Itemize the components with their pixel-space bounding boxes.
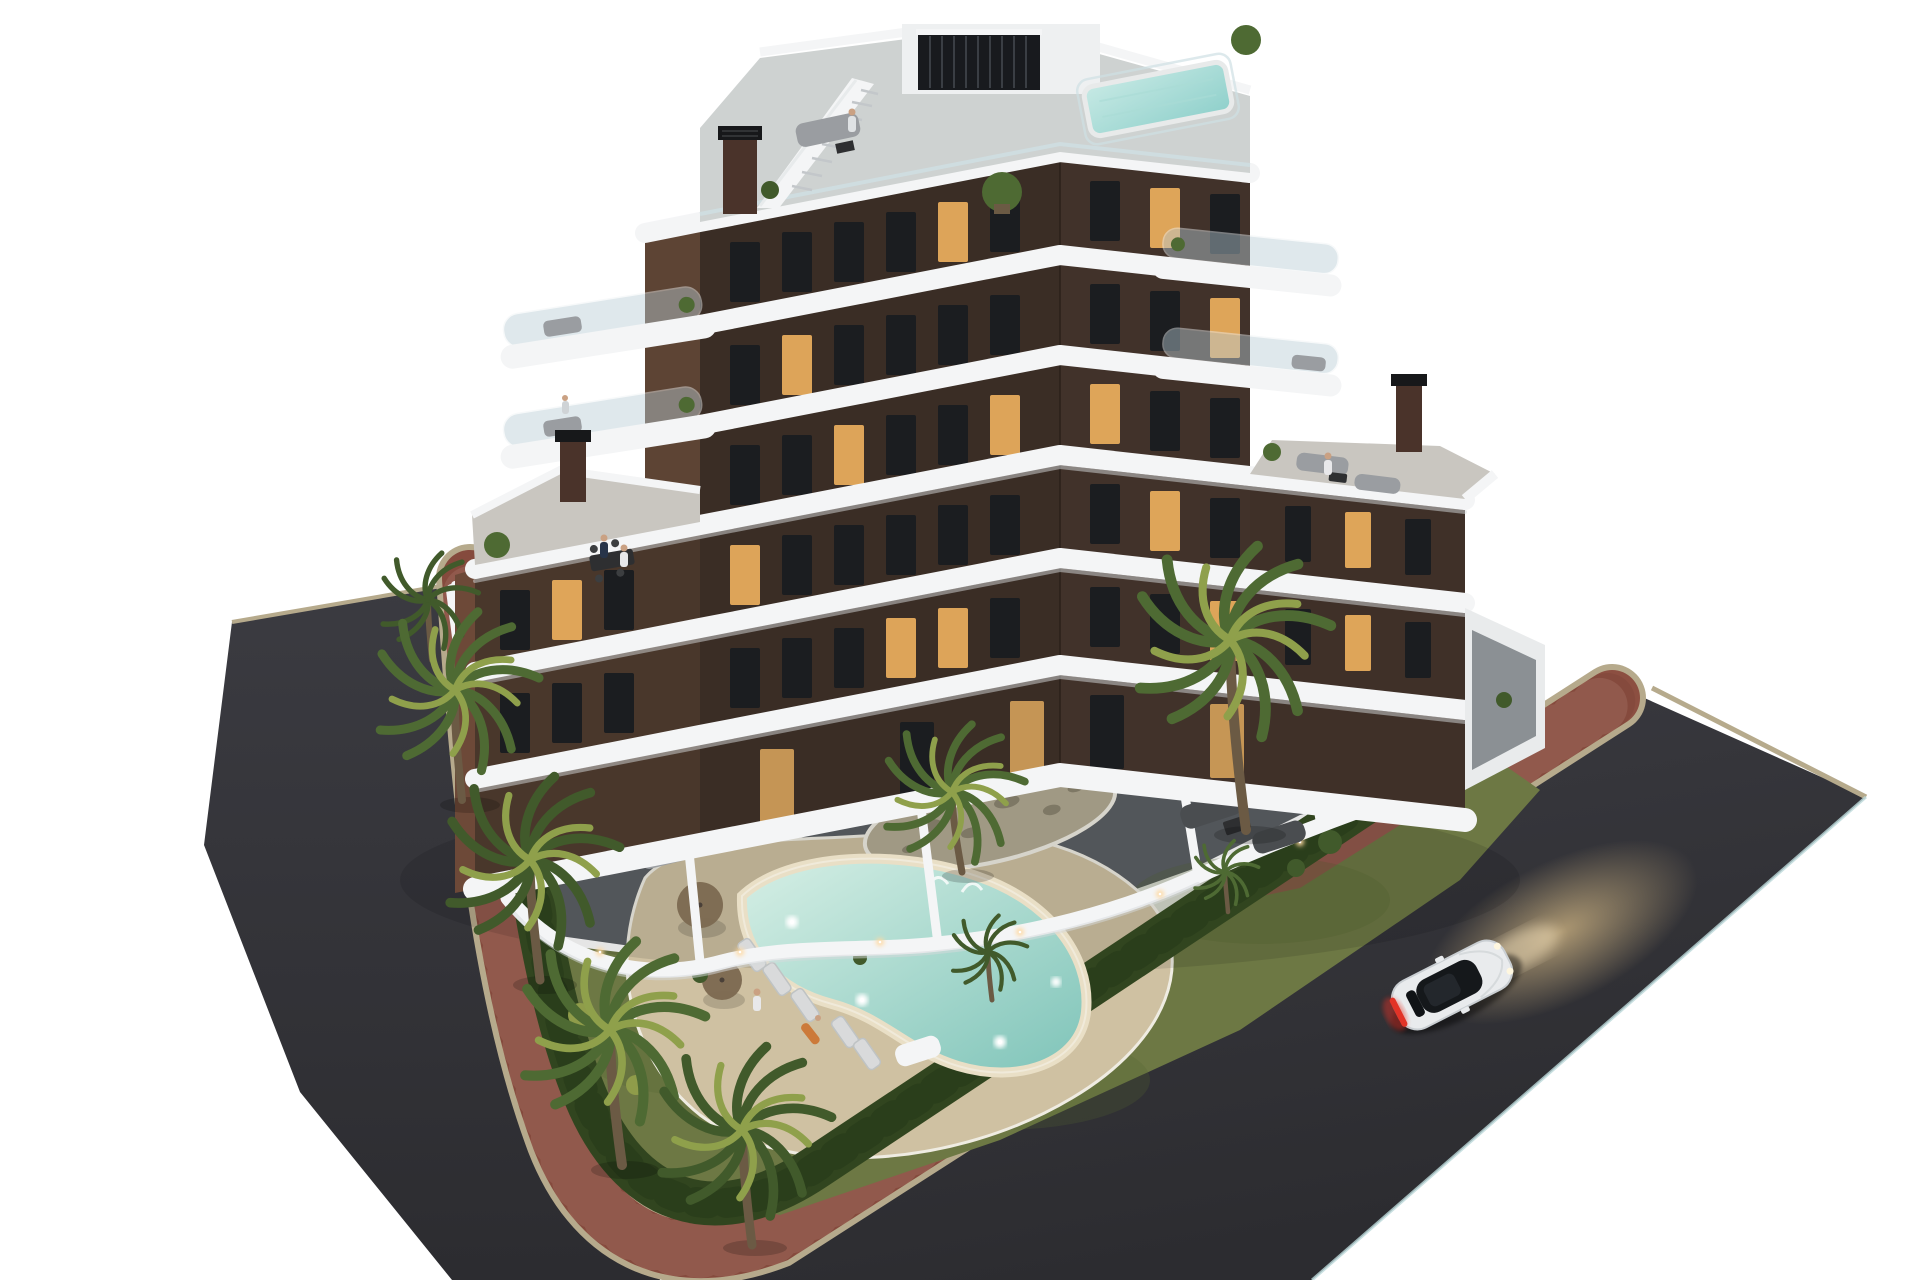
person-balcony bbox=[562, 395, 569, 414]
louvered-wall bbox=[916, 32, 1042, 90]
person-rooftop bbox=[848, 109, 856, 133]
person-roofdeck-1 bbox=[600, 535, 608, 559]
architectural-render bbox=[0, 0, 1920, 1280]
chimney-main bbox=[718, 126, 762, 214]
roof-planter bbox=[484, 532, 510, 558]
chimney-left bbox=[560, 438, 586, 502]
render-root bbox=[0, 0, 1920, 1280]
chimney-right bbox=[1396, 382, 1422, 452]
person-roofdeck-2 bbox=[620, 545, 628, 568]
person-rightwing bbox=[1324, 453, 1332, 476]
person-standing-pool bbox=[753, 989, 761, 1012]
